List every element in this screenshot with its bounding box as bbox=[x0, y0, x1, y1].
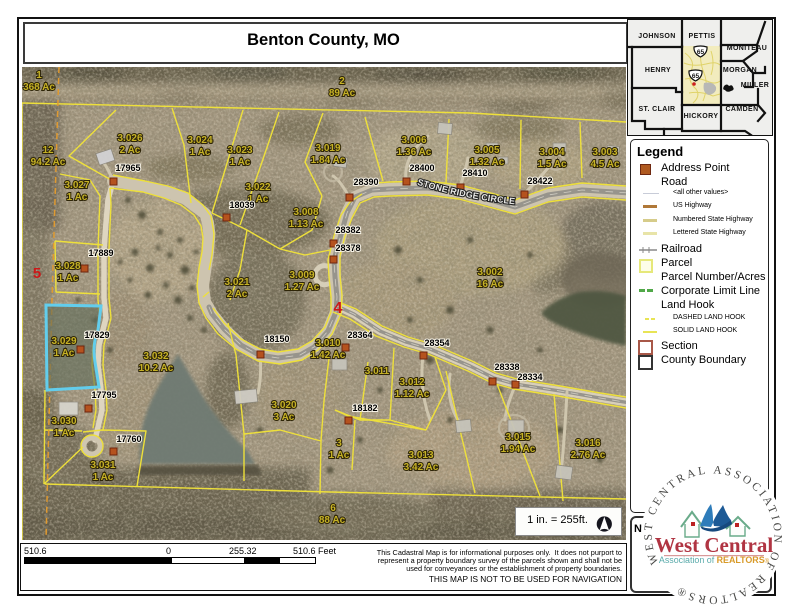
svg-text:3.004: 3.004 bbox=[539, 147, 564, 158]
svg-text:1: 1 bbox=[36, 70, 42, 81]
svg-text:CAMDEN: CAMDEN bbox=[725, 106, 758, 113]
svg-text:12: 12 bbox=[42, 145, 54, 156]
svg-text:3.030: 3.030 bbox=[51, 416, 76, 427]
svg-text:28382: 28382 bbox=[335, 225, 360, 235]
svg-text:28354: 28354 bbox=[424, 338, 449, 348]
svg-text:65: 65 bbox=[692, 73, 700, 80]
svg-text:2 Ac: 2 Ac bbox=[227, 289, 248, 300]
svg-text:18182: 18182 bbox=[352, 403, 377, 413]
svg-text:3.42 Ac: 3.42 Ac bbox=[404, 462, 439, 473]
svg-text:MILLER: MILLER bbox=[741, 82, 769, 89]
svg-text:3.023: 3.023 bbox=[227, 145, 252, 156]
svg-text:2 Ac: 2 Ac bbox=[120, 145, 141, 156]
svg-text:88 Ac: 88 Ac bbox=[319, 515, 346, 526]
svg-text:1.12 Ac: 1.12 Ac bbox=[395, 389, 430, 400]
svg-text:28410: 28410 bbox=[462, 168, 487, 178]
svg-text:65: 65 bbox=[697, 49, 705, 56]
svg-text:18150: 18150 bbox=[264, 334, 289, 344]
svg-text:3.028: 3.028 bbox=[55, 261, 80, 272]
svg-text:1.13 Ac: 1.13 Ac bbox=[289, 219, 324, 230]
svg-text:1.5 Ac: 1.5 Ac bbox=[537, 159, 567, 170]
svg-text:4.5 Ac: 4.5 Ac bbox=[590, 159, 620, 170]
svg-text:1 Ac: 1 Ac bbox=[54, 428, 75, 439]
svg-text:28338: 28338 bbox=[494, 362, 519, 372]
svg-text:89 Ac: 89 Ac bbox=[329, 88, 356, 99]
svg-text:1 Ac: 1 Ac bbox=[54, 348, 75, 359]
svg-text:3.029: 3.029 bbox=[51, 336, 76, 347]
svg-text:16 Ac: 16 Ac bbox=[477, 279, 504, 290]
svg-text:1 Ac: 1 Ac bbox=[93, 472, 114, 483]
svg-text:28364: 28364 bbox=[347, 330, 372, 340]
svg-text:3.006: 3.006 bbox=[401, 135, 426, 146]
svg-text:3.009: 3.009 bbox=[289, 270, 314, 281]
svg-text:ST. CLAIR: ST. CLAIR bbox=[638, 106, 675, 113]
svg-text:1 Ac: 1 Ac bbox=[190, 147, 211, 158]
svg-text:3.021: 3.021 bbox=[224, 277, 249, 288]
svg-text:3.011: 3.011 bbox=[365, 366, 390, 377]
svg-text:17889: 17889 bbox=[88, 248, 113, 258]
svg-text:3.032: 3.032 bbox=[143, 351, 168, 362]
svg-text:HICKORY: HICKORY bbox=[684, 113, 719, 120]
svg-text:PETTIS: PETTIS bbox=[689, 33, 716, 40]
svg-text:18039: 18039 bbox=[229, 200, 254, 210]
svg-text:Association of REALTORS®: Association of REALTORS® bbox=[659, 555, 770, 565]
svg-text:3.020: 3.020 bbox=[271, 400, 296, 411]
svg-text:3.008: 3.008 bbox=[293, 207, 318, 218]
svg-text:3.010: 3.010 bbox=[315, 338, 340, 349]
svg-text:2.76 Ac: 2.76 Ac bbox=[571, 450, 606, 461]
svg-text:1.94 Ac: 1.94 Ac bbox=[501, 444, 536, 455]
svg-text:3.031: 3.031 bbox=[90, 460, 115, 471]
svg-text:1.36 Ac: 1.36 Ac bbox=[397, 147, 432, 158]
svg-text:94.2 Ac: 94.2 Ac bbox=[31, 157, 66, 168]
svg-text:1 Ac: 1 Ac bbox=[67, 192, 88, 203]
svg-text:3.022: 3.022 bbox=[245, 182, 270, 193]
svg-text:3.027: 3.027 bbox=[64, 180, 89, 191]
svg-text:368 Ac: 368 Ac bbox=[23, 82, 55, 93]
svg-text:28422: 28422 bbox=[527, 176, 552, 186]
svg-text:3.003: 3.003 bbox=[592, 147, 617, 158]
svg-text:17795: 17795 bbox=[91, 390, 116, 400]
svg-text:1.32 Ac: 1.32 Ac bbox=[470, 157, 505, 168]
svg-text:10.2 Ac: 10.2 Ac bbox=[139, 363, 174, 374]
svg-text:1.84 Ac: 1.84 Ac bbox=[311, 155, 346, 166]
svg-text:West Central: West Central bbox=[655, 533, 774, 557]
svg-text:28378: 28378 bbox=[335, 243, 360, 253]
svg-text:3 Ac: 3 Ac bbox=[274, 412, 295, 423]
svg-text:MONITEAU: MONITEAU bbox=[727, 45, 768, 52]
svg-text:HENRY: HENRY bbox=[645, 67, 671, 74]
svg-text:3.012: 3.012 bbox=[399, 377, 424, 388]
svg-text:1 Ac: 1 Ac bbox=[230, 157, 251, 168]
svg-text:17829: 17829 bbox=[84, 330, 109, 340]
svg-text:28390: 28390 bbox=[353, 177, 378, 187]
svg-text:4: 4 bbox=[334, 300, 343, 317]
svg-text:1 Ac: 1 Ac bbox=[58, 273, 79, 284]
svg-text:3.015: 3.015 bbox=[505, 432, 530, 443]
svg-text:3.019: 3.019 bbox=[315, 143, 340, 154]
svg-text:17965: 17965 bbox=[115, 163, 140, 173]
svg-text:28400: 28400 bbox=[409, 163, 434, 173]
svg-text:3.005: 3.005 bbox=[474, 145, 499, 156]
svg-text:6: 6 bbox=[330, 503, 336, 514]
svg-text:2: 2 bbox=[339, 76, 345, 87]
svg-text:3.016: 3.016 bbox=[575, 438, 600, 449]
svg-text:3.002: 3.002 bbox=[477, 267, 502, 278]
svg-text:28334: 28334 bbox=[517, 372, 542, 382]
svg-text:1.27 Ac: 1.27 Ac bbox=[285, 282, 320, 293]
svg-text:1.42 Ac: 1.42 Ac bbox=[311, 350, 346, 361]
svg-text:1 Ac: 1 Ac bbox=[329, 450, 350, 461]
svg-text:JOHNSON: JOHNSON bbox=[638, 33, 675, 40]
svg-text:3.026: 3.026 bbox=[117, 133, 142, 144]
svg-text:MORGAN: MORGAN bbox=[723, 67, 757, 74]
svg-text:5: 5 bbox=[33, 265, 41, 282]
svg-text:3.013: 3.013 bbox=[408, 450, 433, 461]
svg-text:3.024: 3.024 bbox=[187, 135, 212, 146]
svg-text:17760: 17760 bbox=[116, 434, 141, 444]
svg-text:3: 3 bbox=[336, 438, 342, 449]
